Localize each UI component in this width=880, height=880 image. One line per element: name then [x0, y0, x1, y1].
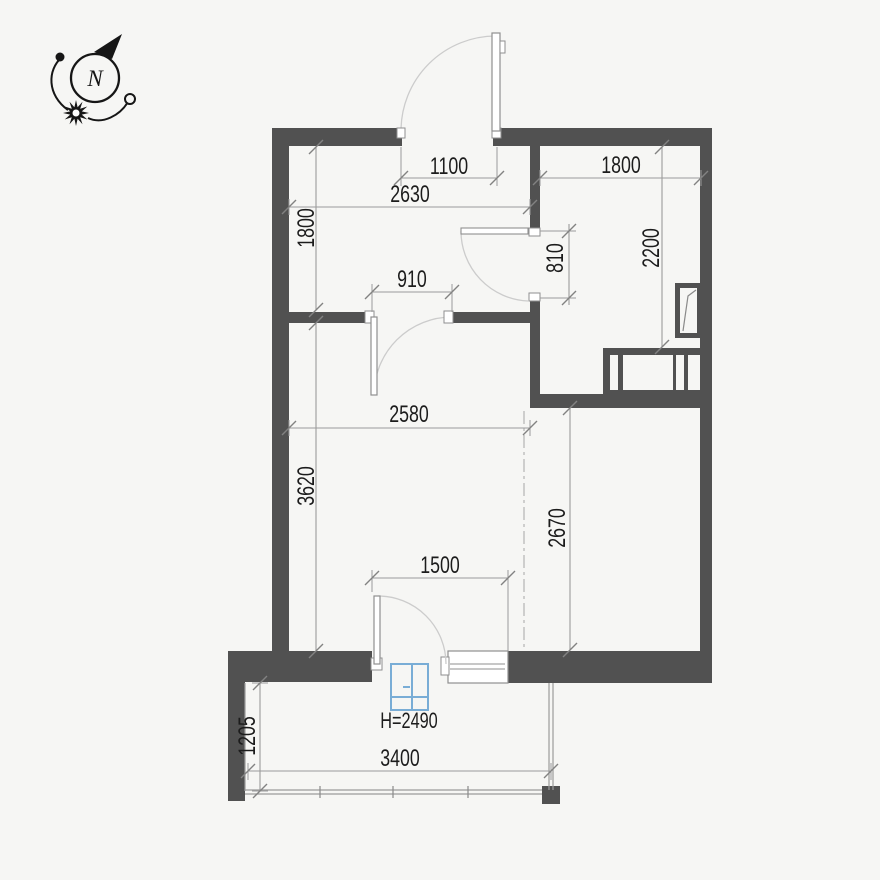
wall-room-partition-bottom	[530, 298, 540, 395]
wall-bottom-right	[508, 651, 712, 683]
dim-balcony-door: 1500	[420, 552, 460, 580]
dim-living-width: 2580	[389, 401, 429, 429]
dim-interior-door: 910	[397, 266, 427, 294]
door-swing-arc	[461, 231, 528, 301]
sun-icon-center	[72, 109, 80, 117]
door-jamb	[444, 311, 453, 323]
dim-room-width: 1800	[601, 152, 641, 180]
vent-shaft-inner	[680, 288, 697, 333]
balcony-outline	[245, 683, 553, 798]
compass-arc-right	[88, 102, 128, 120]
duct-slot	[610, 355, 618, 390]
door-swing-arc	[401, 36, 496, 131]
door-swing-arc	[374, 317, 452, 395]
door-leaf	[371, 317, 377, 395]
compass-dot-filled	[56, 53, 65, 62]
duct-slot	[623, 355, 673, 390]
door-leaf	[374, 596, 380, 664]
duct-slot	[688, 355, 700, 390]
dim-living-depth: 3620	[293, 466, 321, 506]
floor-plan: N 1100 2630 910 1800 2580 1500 3400 1800…	[0, 0, 880, 880]
duct-assembly	[603, 283, 712, 394]
glazing-symbol	[391, 664, 428, 710]
window-bottom	[441, 651, 508, 683]
compass-north-label: N	[86, 66, 104, 91]
door-leaf	[461, 228, 528, 234]
wall-hall-bottom-right	[452, 312, 530, 323]
dim-balcony-depth: 1205	[234, 716, 262, 756]
door-jamb	[529, 228, 540, 236]
compass: N	[51, 34, 135, 126]
dim-hall-depth: 1800	[293, 208, 321, 248]
wall-hall-bottom-left	[289, 312, 373, 323]
label-glazing-height: H=2490	[380, 708, 437, 734]
room-door	[461, 228, 540, 301]
door-leaf	[492, 33, 500, 131]
dim-room-door: 810	[542, 243, 570, 273]
balcony-glazing-lines	[245, 683, 553, 794]
floor-plan-drawing: N	[0, 0, 880, 880]
duct-slot	[676, 355, 684, 390]
wall-room-divider	[530, 394, 712, 408]
balcony-corner-block	[542, 786, 560, 804]
door-handle-mark	[500, 41, 505, 53]
compass-arc-left	[51, 57, 68, 110]
wall-bottom-left	[228, 651, 372, 682]
dim-room-depth: 2200	[638, 228, 666, 268]
balcony-glazing-ticks	[320, 786, 468, 798]
interior-door	[365, 311, 453, 395]
entrance-door	[397, 33, 505, 138]
wall-left	[272, 146, 289, 651]
door-jamb	[529, 293, 540, 301]
dim-hall-width: 2630	[390, 181, 430, 209]
compass-dot-open	[125, 94, 135, 104]
wall-room-partition-top	[530, 146, 540, 228]
balcony-door	[371, 596, 446, 670]
glazing-symbol-dividers	[391, 664, 428, 710]
dim-entry-opening: 1100	[430, 153, 468, 181]
door-swing-arc	[378, 596, 446, 664]
dim-zone-depth: 2670	[544, 508, 572, 548]
wall-top-right	[493, 128, 712, 146]
dim-balcony-width: 3400	[380, 745, 420, 773]
window-frame	[448, 651, 508, 683]
wall-top-left	[272, 128, 402, 146]
door-jamb	[397, 128, 405, 138]
window-jamb	[441, 657, 449, 675]
